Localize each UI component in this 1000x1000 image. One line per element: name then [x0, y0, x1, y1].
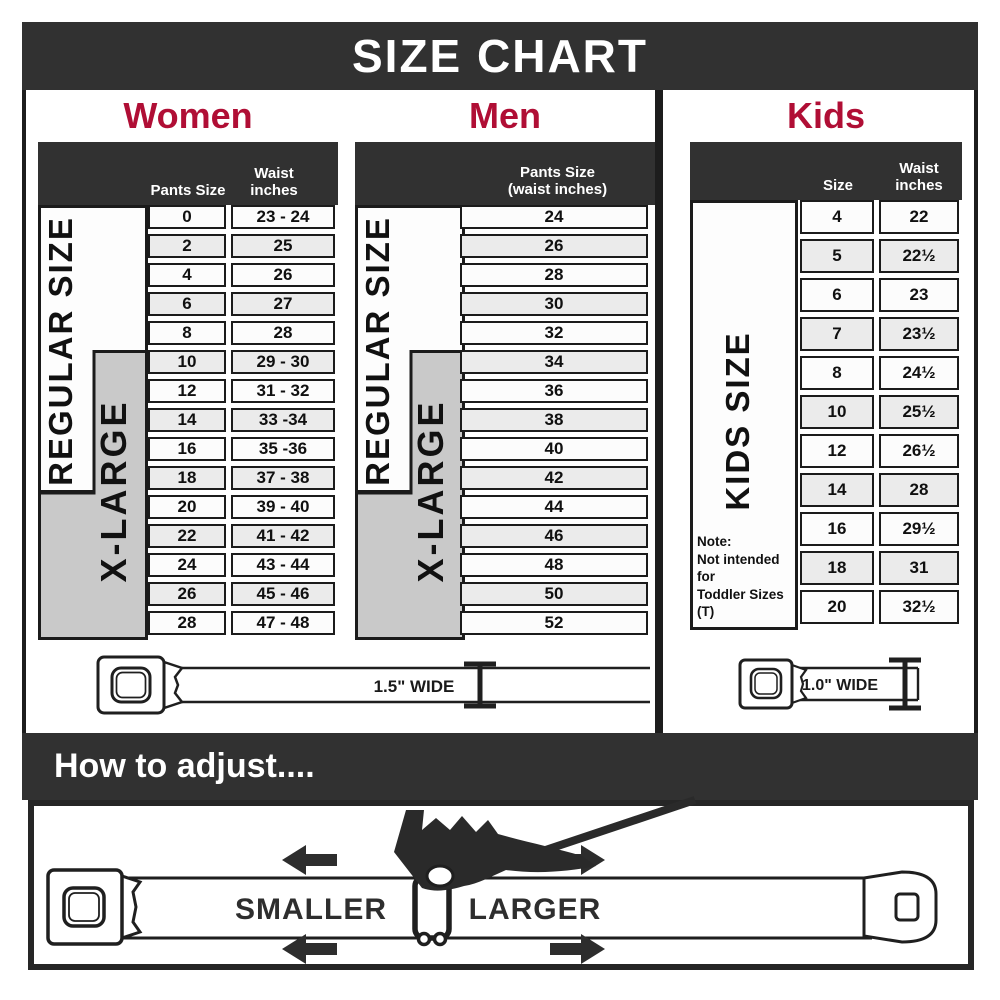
section-divider	[655, 90, 663, 733]
table-row: 1837 - 38	[148, 466, 335, 490]
table-row: 28	[460, 263, 648, 287]
adult-belt-width-label: 1.5" WIDE	[374, 677, 455, 696]
men-regular-label: REGULAR SIZE	[359, 216, 396, 486]
table-row: 30	[460, 292, 648, 316]
waist-cell: 35 -36	[231, 437, 335, 461]
pants-size-cell: 14	[148, 408, 226, 432]
page-title: SIZE CHART	[352, 30, 648, 82]
how-to-adjust-banner: How to adjust....	[22, 733, 978, 800]
table-row: 46	[460, 524, 648, 548]
buckle-tab	[164, 662, 182, 708]
kids-belt-illustration: 1.0" WIDE	[732, 656, 968, 714]
men-xlarge-label: X-LARGE	[410, 400, 451, 583]
table-row: 52	[460, 611, 648, 635]
size-cell: 4	[800, 200, 874, 234]
table-row: 2443 - 44	[148, 553, 335, 577]
waist-cell: 27	[231, 292, 335, 316]
table-row: 1635 -36	[148, 437, 335, 461]
kids-table-header: Size Waist inches	[690, 142, 962, 200]
waist-cell: 32½	[879, 590, 959, 624]
right-border	[974, 90, 978, 733]
waist-cell: 23	[879, 278, 959, 312]
waist-cell: 37 - 38	[231, 466, 335, 490]
smaller-label: SMALLER	[235, 893, 387, 926]
table-row: 023 - 24	[148, 205, 335, 229]
women-table-header: Pants Size Waist inches	[38, 142, 338, 205]
kids-note: Note: Not intended for Toddler Sizes (T)	[697, 533, 797, 621]
table-row: 828	[148, 321, 335, 345]
larger-label: LARGER	[469, 893, 602, 926]
kids-size-label: KIDS SIZE	[719, 331, 756, 510]
pants-size-cell: 0	[148, 205, 226, 229]
pants-size-cell: 42	[460, 466, 648, 490]
women-pants-size-header: Pants Size	[150, 182, 226, 199]
waist-cell: 28	[879, 473, 959, 507]
men-size-range-labels: REGULAR SIZE X-LARGE	[355, 205, 465, 640]
waist-cell: 22½	[879, 239, 959, 273]
table-row: 623	[800, 278, 959, 312]
pants-size-cell: 40	[460, 437, 648, 461]
table-row: 50	[460, 582, 648, 606]
pants-size-cell: 10	[148, 350, 226, 374]
table-row: 1226½	[800, 434, 959, 468]
pants-size-cell: 28	[460, 263, 648, 287]
pants-size-cell: 36	[460, 379, 648, 403]
waist-cell: 24½	[879, 356, 959, 390]
table-row: 1029 - 30	[148, 350, 335, 374]
waist-cell: 25½	[879, 395, 959, 429]
arrow-left-icon	[282, 845, 337, 875]
table-row: 2039 - 40	[148, 495, 335, 519]
men-table-header: Pants Size (waist inches)	[355, 142, 655, 205]
size-cell: 12	[800, 434, 874, 468]
kids-note-line3: Toddler Sizes (T)	[697, 587, 784, 620]
size-cell: 14	[800, 473, 874, 507]
size-cell: 16	[800, 512, 874, 546]
kids-waist-header: Waist inches	[886, 160, 952, 195]
adjuster-foot	[435, 934, 446, 945]
waist-cell: 31	[879, 551, 959, 585]
size-cell: 7	[800, 317, 874, 351]
pants-size-cell: 50	[460, 582, 648, 606]
table-row: 42	[460, 466, 648, 490]
pants-size-cell: 24	[460, 205, 648, 229]
table-row: 2032½	[800, 590, 959, 624]
belt-tip-hole	[896, 894, 918, 920]
table-row: 34	[460, 350, 648, 374]
pants-size-cell: 34	[460, 350, 648, 374]
waist-cell: 41 - 42	[231, 524, 335, 548]
kids-note-line1: Note:	[697, 534, 732, 549]
kids-note-line2: Not intended for	[697, 552, 780, 585]
kids-size-table: 422 522½ 623 723½ 824½ 1025½ 1226½ 1428 …	[795, 195, 964, 629]
buckle-tab	[122, 876, 140, 938]
pants-size-cell: 28	[148, 611, 226, 635]
adjust-heading: How to adjust....	[54, 747, 315, 785]
size-cell: 10	[800, 395, 874, 429]
adjuster-foot	[419, 934, 430, 945]
waist-cell: 26½	[879, 434, 959, 468]
waist-cell: 43 - 44	[231, 553, 335, 577]
pants-size-cell: 38	[460, 408, 648, 432]
pants-size-cell: 46	[460, 524, 648, 548]
waist-cell: 22	[879, 200, 959, 234]
waist-cell: 23 - 24	[231, 205, 335, 229]
table-row: 627	[148, 292, 335, 316]
women-xlarge-label: X-LARGE	[93, 400, 134, 583]
adjust-illustration: SMALLER LARGER	[34, 806, 968, 964]
table-row: 26	[460, 234, 648, 258]
table-row: 40	[460, 437, 648, 461]
waist-cell: 45 - 46	[231, 582, 335, 606]
pants-size-cell: 52	[460, 611, 648, 635]
women-size-range-labels: REGULAR SIZE X-LARGE	[38, 205, 148, 640]
adult-belt-illustration: 1.5" WIDE	[92, 652, 652, 718]
table-row: 44	[460, 495, 648, 519]
waist-cell: 39 - 40	[231, 495, 335, 519]
pants-size-cell: 20	[148, 495, 226, 519]
pants-size-cell: 6	[148, 292, 226, 316]
women-waist-header: Waist inches	[244, 165, 304, 200]
pants-size-cell: 8	[148, 321, 226, 345]
kids-size-header: Size	[800, 177, 876, 194]
size-cell: 6	[800, 278, 874, 312]
table-row: 2241 - 42	[148, 524, 335, 548]
kids-title: Kids	[690, 95, 962, 139]
table-row: 2847 - 48	[148, 611, 335, 635]
women-title: Women	[38, 95, 338, 139]
men-title: Men	[355, 95, 655, 139]
left-border	[22, 90, 26, 733]
table-row: 48	[460, 553, 648, 577]
women-regular-label: REGULAR SIZE	[42, 216, 79, 486]
men-header-line2: (waist inches)	[465, 181, 650, 198]
pants-size-cell: 22	[148, 524, 226, 548]
waist-cell: 23½	[879, 317, 959, 351]
table-row: 1025½	[800, 395, 959, 429]
table-row: 723½	[800, 317, 959, 351]
table-row: 426	[148, 263, 335, 287]
table-row: 522½	[800, 239, 959, 273]
pants-size-cell: 18	[148, 466, 226, 490]
table-row: 24	[460, 205, 648, 229]
table-row: 1629½	[800, 512, 959, 546]
waist-cell: 33 -34	[231, 408, 335, 432]
size-cell: 20	[800, 590, 874, 624]
pants-size-cell: 26	[460, 234, 648, 258]
table-row: 1831	[800, 551, 959, 585]
fingertip	[427, 866, 453, 886]
table-row: 422	[800, 200, 959, 234]
pants-size-cell: 24	[148, 553, 226, 577]
pants-size-cell: 26	[148, 582, 226, 606]
pants-size-cell: 4	[148, 263, 226, 287]
men-header-line1: Pants Size	[465, 164, 650, 181]
table-row: 2645 - 46	[148, 582, 335, 606]
table-row: 32	[460, 321, 648, 345]
table-row: 36	[460, 379, 648, 403]
waist-cell: 25	[231, 234, 335, 258]
waist-cell: 29½	[879, 512, 959, 546]
title-banner: SIZE CHART	[22, 22, 978, 90]
size-cell: 8	[800, 356, 874, 390]
waist-cell: 29 - 30	[231, 350, 335, 374]
table-row: 225	[148, 234, 335, 258]
kids-belt-width-label: 1.0" WIDE	[802, 677, 878, 694]
size-cell: 5	[800, 239, 874, 273]
table-row: 38	[460, 408, 648, 432]
pants-size-cell: 48	[460, 553, 648, 577]
kids-size-label-box: KIDS SIZE Note: Not intended for Toddler…	[690, 200, 798, 630]
waist-cell: 28	[231, 321, 335, 345]
size-cell: 18	[800, 551, 874, 585]
waist-cell: 26	[231, 263, 335, 287]
pants-size-cell: 2	[148, 234, 226, 258]
pants-size-cell: 32	[460, 321, 648, 345]
women-size-table: 023 - 24 225 426 627 828 1029 - 30 1231 …	[143, 200, 340, 640]
table-row: 1428	[800, 473, 959, 507]
pants-size-cell: 12	[148, 379, 226, 403]
table-row: 1433 -34	[148, 408, 335, 432]
pants-size-cell: 44	[460, 495, 648, 519]
waist-cell: 31 - 32	[231, 379, 335, 403]
adjust-illustration-box: SMALLER LARGER	[28, 800, 974, 970]
table-row: 824½	[800, 356, 959, 390]
table-row: 1231 - 32	[148, 379, 335, 403]
waist-cell: 47 - 48	[231, 611, 335, 635]
pants-size-cell: 30	[460, 292, 648, 316]
pants-size-cell: 16	[148, 437, 226, 461]
men-size-table: 24 26 28 30 32 34 36 38 40 42 44 46 48 5…	[455, 200, 653, 640]
size-chart-page: SIZE CHART Women Men Kids Pants Size Wai…	[0, 0, 1000, 1000]
